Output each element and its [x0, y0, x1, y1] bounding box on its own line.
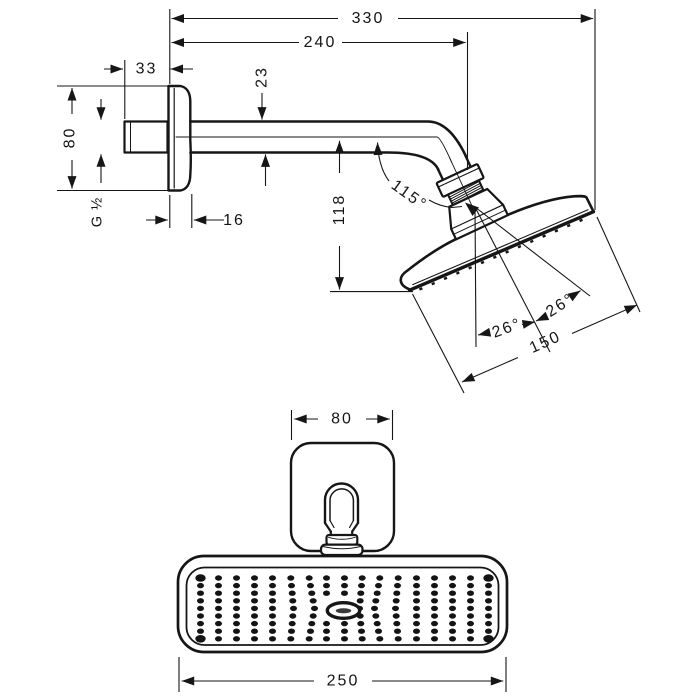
nozzle-dot: [289, 613, 296, 618]
nozzle-dot: [215, 629, 222, 634]
dim-wall-stub: 33: [136, 61, 158, 78]
nozzle-dot: [467, 621, 474, 626]
nozzle-dot: [323, 636, 330, 641]
dim-escutcheon-height: 80: [62, 127, 79, 149]
nozzle-dot: [308, 591, 315, 596]
nozzle-dot: [233, 583, 240, 588]
arm-centerline: [176, 137, 452, 163]
nozzle-dot: [269, 613, 276, 618]
nozzle-dot: [467, 636, 474, 641]
nozzle-dot: [251, 606, 258, 611]
wall-thread-nipple: [125, 122, 168, 153]
nozzle-dot: [393, 621, 400, 626]
nozzle-dot: [233, 613, 240, 618]
nozzle-dot: [375, 629, 382, 634]
nozzle-dot: [269, 629, 276, 634]
dim-overall-length: 330: [352, 10, 385, 27]
nozzle-dot: [251, 583, 258, 588]
nozzle-dot: [467, 606, 474, 611]
dim-drop-height: 118: [331, 194, 348, 226]
nozzle-dot: [288, 629, 295, 634]
nozzle-dot: [269, 606, 276, 611]
nozzle-dot: [195, 635, 205, 643]
dim-arm-length: 240: [304, 34, 337, 51]
nozzle-dot: [413, 606, 420, 611]
nozzle-dot: [376, 636, 383, 641]
nozzle-dot: [413, 575, 420, 580]
nozzle-dot: [323, 583, 330, 588]
nozzle-dot: [393, 613, 400, 618]
nozzle-dot: [215, 575, 222, 580]
dim-escutcheon-depth: 16: [223, 212, 245, 229]
nozzle-dot: [308, 621, 315, 626]
nozzle-dot: [392, 606, 399, 611]
nozzle-dot: [449, 613, 456, 618]
dim-head-angle: 115°: [388, 177, 430, 214]
nozzle-dot: [197, 613, 204, 618]
nozzle-dot: [197, 598, 204, 603]
nozzle-dot: [467, 613, 474, 618]
nozzle-dot: [341, 591, 348, 596]
nozzle-dot: [251, 598, 258, 603]
nozzle-dot: [431, 629, 438, 634]
nozzle-dot: [413, 583, 420, 588]
nozzle-dot: [307, 583, 314, 588]
nozzle-dot: [449, 621, 456, 626]
nozzle-dot: [287, 575, 294, 580]
technical-drawing-page: 330 240 33 80 G ½ 16 23: [0, 0, 700, 700]
nozzle-dot: [233, 621, 240, 626]
nozzle-dot: [394, 583, 401, 588]
nozzle-dot: [485, 606, 492, 611]
nozzle-dot: [449, 598, 456, 603]
nozzle-dot: [269, 621, 276, 626]
nozzle-dot: [215, 636, 222, 641]
dim-head-width: 250: [327, 673, 360, 690]
nozzle-dot: [290, 606, 297, 611]
nozzle-dot: [251, 591, 258, 596]
nozzle-dot: [197, 583, 204, 588]
nozzle-dot: [289, 598, 296, 603]
nozzle-dot: [307, 629, 314, 634]
nozzle-dot: [359, 575, 366, 580]
nozzle-dot: [269, 591, 276, 596]
nozzle-dot: [306, 636, 313, 641]
dim-arm-diameter: 23: [254, 66, 271, 88]
nozzle-dot: [449, 583, 456, 588]
nozzle-dot: [395, 575, 402, 580]
nozzle-dot: [358, 629, 365, 634]
nozzle-dot: [431, 583, 438, 588]
nozzle-dot: [341, 575, 348, 580]
nozzle-dot: [215, 613, 222, 618]
nozzle-dot: [449, 636, 456, 641]
nozzle-dot: [251, 629, 258, 634]
nozzle-dot: [371, 606, 378, 611]
nozzle-dot: [483, 574, 493, 582]
dim-spray-angle-outer: 26°: [543, 290, 578, 320]
nozzle-dot: [197, 591, 204, 596]
brand-logo: [327, 603, 359, 619]
nozzle-dot: [485, 621, 492, 626]
nozzle-dot: [251, 575, 258, 580]
nozzle-dot: [233, 575, 240, 580]
nozzle-dot: [431, 598, 438, 603]
nozzle-dot: [357, 591, 364, 596]
nozzle-dot: [289, 621, 296, 626]
nozzle-dot: [485, 598, 492, 603]
nozzle-dot: [341, 636, 348, 641]
shower-dimension-drawing: 330 240 33 80 G ½ 16 23: [0, 0, 700, 700]
nozzle-dot: [323, 629, 330, 634]
nozzle-dot: [306, 575, 313, 580]
nozzle-dot: [197, 606, 204, 611]
nozzle-dot: [215, 598, 222, 603]
nozzle-dot: [375, 583, 382, 588]
nozzle-dot: [195, 574, 205, 582]
nozzle-dot: [449, 575, 456, 580]
head-dome-left: [394, 239, 467, 291]
nozzle-dot: [233, 598, 240, 603]
escutcheon-side: [169, 86, 191, 191]
nozzle-dot: [485, 591, 492, 596]
nozzle-dot: [251, 636, 258, 641]
nozzle-dot: [431, 636, 438, 641]
nozzle-dot: [197, 629, 204, 634]
nozzle-dot: [359, 636, 366, 641]
nozzle-dot: [431, 575, 438, 580]
dim-head-face-length: 150: [527, 328, 564, 357]
ball-joint-front: [321, 545, 363, 555]
nozzle-dot: [310, 598, 317, 603]
dim-escutcheon-width: 80: [331, 411, 353, 428]
nozzle-dot: [323, 575, 330, 580]
nozzle-dot: [449, 629, 456, 634]
nozzle-dot: [358, 583, 365, 588]
nozzle-dot: [289, 591, 296, 596]
nozzle-dot: [311, 606, 318, 611]
nozzle-dot: [485, 583, 492, 588]
nozzle-dot: [393, 591, 400, 596]
nozzle-dot: [233, 606, 240, 611]
front-view: 80 250: [178, 410, 507, 692]
nozzle-dot: [413, 636, 420, 641]
nozzle-dot: [269, 598, 276, 603]
nozzle-dot: [431, 606, 438, 611]
nozzle-dot: [449, 606, 456, 611]
nozzle-dot: [431, 591, 438, 596]
nozzle-dot: [413, 613, 420, 618]
dim-spray-angle-inner: 26°: [490, 315, 524, 341]
nozzle-dot: [483, 635, 493, 643]
nozzle-dot: [341, 621, 348, 626]
nozzle-dot: [485, 613, 492, 618]
nozzle-dot: [323, 591, 330, 596]
nozzle-dot: [310, 613, 317, 618]
nozzle-dot: [233, 636, 240, 641]
nozzle-dot: [341, 583, 348, 588]
nozzle-dot: [372, 613, 379, 618]
nozzle-dot: [233, 629, 240, 634]
nozzle-dot: [323, 621, 330, 626]
nozzle-dot: [251, 613, 258, 618]
nozzle-dot: [485, 629, 492, 634]
nozzle-dot: [374, 621, 381, 626]
nozzle-dot: [395, 636, 402, 641]
nozzle-dot: [215, 591, 222, 596]
nozzle-dot: [215, 606, 222, 611]
nozzle-dot: [449, 591, 456, 596]
nozzle-dot: [269, 575, 276, 580]
nozzle-dot: [431, 613, 438, 618]
nozzle-dot: [376, 575, 383, 580]
nozzle-dot: [393, 598, 400, 603]
nozzle-dot: [467, 583, 474, 588]
nozzle-dot: [288, 583, 295, 588]
nozzle-dot: [341, 629, 348, 634]
nozzle-dot: [251, 621, 258, 626]
nozzle-dot: [467, 598, 474, 603]
nozzle-dot: [413, 598, 420, 603]
nozzle-dot: [413, 629, 420, 634]
nozzle-dot: [467, 629, 474, 634]
nozzle-dot: [215, 621, 222, 626]
nozzle-dot: [394, 629, 401, 634]
nozzle-dot: [357, 621, 364, 626]
nozzle-dot: [197, 621, 204, 626]
dim-connection-thread: G ½: [90, 197, 106, 227]
nozzle-dot: [372, 598, 379, 603]
nozzle-dot: [287, 636, 294, 641]
side-view: 330 240 33 80 G ½ 16 23: [57, 9, 640, 393]
nozzle-dot: [374, 591, 381, 596]
nozzle-dot: [233, 591, 240, 596]
nozzle-dot: [467, 591, 474, 596]
nozzle-dot: [467, 575, 474, 580]
nozzle-dot: [269, 583, 276, 588]
nozzle-dot: [269, 636, 276, 641]
nozzle-dot: [431, 621, 438, 626]
nozzle-dot: [413, 591, 420, 596]
nozzle-dot: [413, 621, 420, 626]
nozzle-dot: [357, 598, 364, 603]
shower-head-front: [178, 556, 507, 652]
nozzle-dot: [215, 583, 222, 588]
shower-arm-side: [176, 122, 466, 170]
